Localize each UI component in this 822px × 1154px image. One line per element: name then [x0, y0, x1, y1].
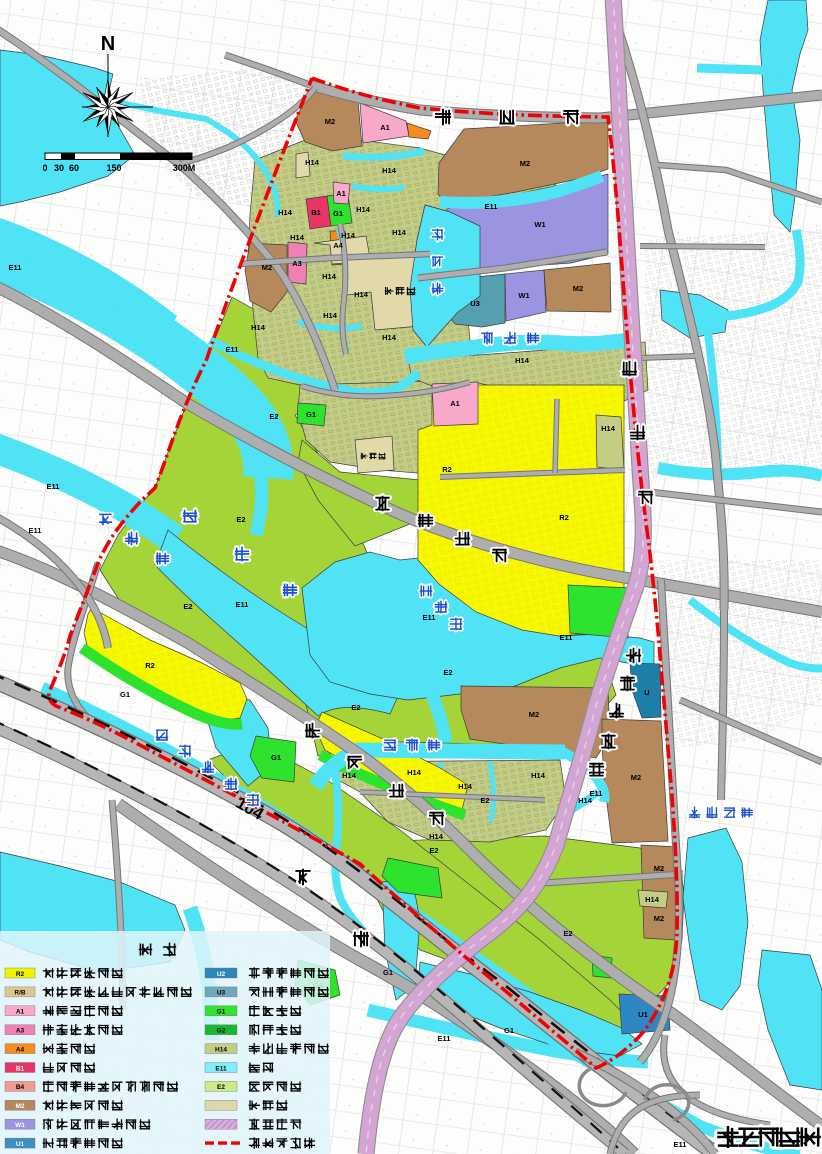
svg-text:M2: M2 — [654, 914, 664, 923]
svg-text:M2: M2 — [15, 1103, 24, 1110]
svg-text:G1: G1 — [504, 1026, 514, 1035]
svg-text:H14: H14 — [305, 158, 320, 167]
svg-text:H14: H14 — [458, 782, 473, 791]
svg-text:A4: A4 — [333, 241, 343, 250]
svg-text:E11: E11 — [215, 1065, 227, 1072]
svg-text:G2: G2 — [217, 1028, 226, 1035]
svg-text:H14: H14 — [290, 233, 305, 242]
svg-text:E2: E2 — [236, 515, 245, 524]
svg-text:E11: E11 — [47, 482, 60, 491]
svg-text:H14: H14 — [354, 290, 369, 299]
svg-text:H14: H14 — [342, 771, 357, 780]
svg-text:H14: H14 — [645, 895, 660, 904]
svg-text:U: U — [644, 688, 649, 697]
svg-text:M2: M2 — [325, 117, 335, 126]
svg-text:0: 0 — [42, 163, 47, 173]
svg-text:E2: E2 — [480, 796, 489, 805]
svg-text:M2: M2 — [654, 864, 664, 873]
svg-text:M2: M2 — [529, 710, 539, 719]
svg-text:M2: M2 — [631, 773, 641, 782]
svg-text:150: 150 — [106, 163, 121, 173]
svg-text:H14: H14 — [515, 356, 530, 365]
svg-text:A3: A3 — [292, 259, 302, 268]
svg-text:G1: G1 — [306, 410, 316, 419]
svg-text:E11: E11 — [674, 1140, 687, 1149]
svg-text:B1: B1 — [16, 1065, 25, 1072]
svg-text:H14: H14 — [531, 771, 546, 780]
svg-text:E11: E11 — [236, 600, 249, 609]
svg-text:60: 60 — [69, 163, 79, 173]
svg-text:U3: U3 — [470, 299, 480, 308]
svg-text:H14: H14 — [382, 333, 397, 342]
svg-text:H14: H14 — [382, 166, 397, 175]
svg-text:H14: H14 — [429, 832, 444, 841]
svg-text:M2: M2 — [520, 159, 530, 168]
svg-text:E2: E2 — [217, 1084, 225, 1091]
svg-text:E2: E2 — [443, 668, 452, 677]
svg-text:R2: R2 — [559, 513, 569, 522]
svg-text:H14: H14 — [278, 208, 293, 217]
svg-text:A1: A1 — [336, 189, 346, 198]
svg-text:300M: 300M — [173, 163, 196, 173]
svg-text:E11: E11 — [560, 633, 573, 642]
svg-text:G1: G1 — [217, 1009, 226, 1016]
svg-text:R2: R2 — [16, 971, 25, 978]
svg-text:E11: E11 — [423, 613, 436, 622]
svg-text:U1: U1 — [16, 1141, 25, 1148]
svg-text:E11: E11 — [438, 1034, 451, 1043]
svg-text:E11: E11 — [29, 526, 42, 535]
svg-text:U1: U1 — [638, 1010, 648, 1019]
svg-text:H14: H14 — [392, 228, 407, 237]
svg-text:A4: A4 — [16, 1046, 25, 1053]
svg-text:A1: A1 — [16, 1009, 25, 1016]
svg-text:U3: U3 — [217, 990, 226, 997]
svg-text:A1: A1 — [450, 399, 460, 408]
svg-text:G1: G1 — [383, 968, 393, 977]
svg-text:H14: H14 — [341, 231, 356, 240]
svg-text:A3: A3 — [16, 1028, 25, 1035]
svg-text:R2: R2 — [145, 661, 155, 670]
svg-text:G1: G1 — [333, 209, 343, 218]
svg-text:W1: W1 — [518, 291, 529, 300]
svg-text:H14: H14 — [215, 1046, 227, 1053]
svg-text:M2: M2 — [262, 263, 272, 272]
svg-text:A1: A1 — [380, 123, 390, 132]
svg-text:E11: E11 — [226, 345, 239, 354]
svg-text:H14: H14 — [601, 424, 616, 433]
svg-text:H14: H14 — [356, 205, 371, 214]
svg-text:H14: H14 — [407, 768, 422, 777]
svg-text:M2: M2 — [573, 284, 583, 293]
svg-text:B1: B1 — [311, 208, 321, 217]
svg-text:N: N — [101, 33, 115, 55]
svg-text:W1: W1 — [15, 1122, 25, 1129]
svg-text:E2: E2 — [183, 602, 192, 611]
svg-text:G1: G1 — [120, 690, 130, 699]
svg-text:E11: E11 — [9, 263, 22, 272]
svg-text:H14: H14 — [323, 311, 338, 320]
svg-text:R2: R2 — [442, 465, 452, 474]
svg-text:W1: W1 — [534, 220, 545, 229]
svg-text:E2: E2 — [269, 412, 278, 421]
svg-text:B4: B4 — [16, 1084, 25, 1091]
svg-text:E2: E2 — [429, 846, 438, 855]
svg-text:H14: H14 — [251, 323, 266, 332]
svg-text:E11: E11 — [590, 789, 603, 798]
svg-text:30: 30 — [54, 163, 64, 173]
svg-text:E2: E2 — [563, 929, 572, 938]
svg-text:R/B: R/B — [14, 990, 26, 997]
svg-text:U2: U2 — [217, 971, 226, 978]
svg-text:G1: G1 — [271, 753, 281, 762]
svg-text:E2: E2 — [351, 703, 360, 712]
svg-text:H14: H14 — [322, 272, 337, 281]
svg-text:E11: E11 — [485, 202, 498, 211]
